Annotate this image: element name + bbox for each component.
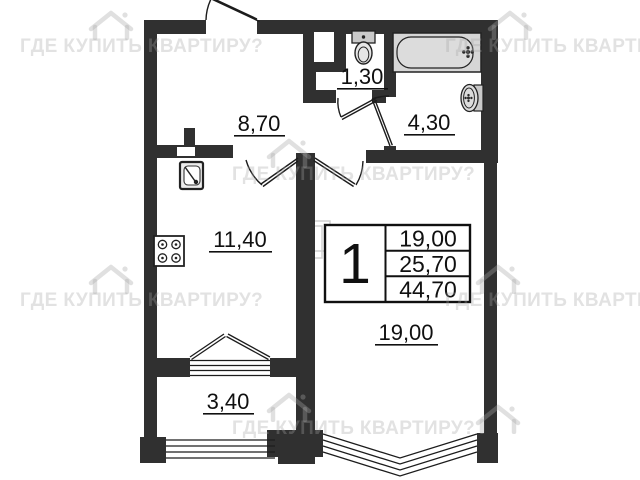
hallway-area-underline bbox=[234, 135, 285, 137]
wash-basin-icon bbox=[461, 85, 483, 112]
vent-stub bbox=[184, 128, 195, 147]
wc-area-underline bbox=[337, 88, 388, 90]
kitchen-sink-icon bbox=[180, 162, 203, 189]
floor-plan: 8,70 1,30 4,30 11,40 19,00 3,40 1 19,00 … bbox=[0, 0, 640, 480]
table-living-area: 19,00 bbox=[399, 226, 457, 252]
wall-top-right bbox=[257, 20, 498, 34]
watermark-text: ГДЕ КУПИТЬ КВАРТИРУ? bbox=[232, 418, 475, 439]
wall-kitchen-balcony-right bbox=[270, 358, 315, 377]
kitchen-area-underline bbox=[209, 251, 272, 253]
wall-bay-corner-right bbox=[477, 433, 498, 463]
wc-area-label: 1,30 bbox=[341, 64, 384, 89]
bathroom-area-label: 4,30 bbox=[408, 110, 451, 135]
wall-bath-door-stub bbox=[384, 146, 396, 156]
table-apartment-area: 25,70 bbox=[399, 251, 457, 277]
wall-kitchen-room-divider bbox=[296, 153, 315, 432]
watermark-text: ГДЕ КУПИТЬ КВАРТИРУ? bbox=[20, 36, 263, 57]
wall-wc-bottom bbox=[303, 90, 336, 103]
watermark-text: ГДЕ КУПИТЬ КВАРТИРУ? bbox=[445, 290, 640, 311]
balcony-area-underline bbox=[203, 413, 254, 415]
watermark-text: ГДЕ КУПИТЬ КВАРТИРУ? bbox=[20, 290, 263, 311]
wall-kitchen-balcony-left bbox=[144, 358, 190, 377]
wall-bay-block-foot bbox=[278, 457, 315, 464]
living-room-area-underline bbox=[375, 344, 438, 346]
vent-hole-wc bbox=[314, 32, 334, 62]
kitchen-area-label: 11,40 bbox=[213, 227, 266, 252]
watermark-text: ГДЕ КУПИТЬ КВАРТИРУ? bbox=[445, 36, 640, 57]
floor-plan-page: 8,70 1,30 4,30 11,40 19,00 3,40 1 19,00 … bbox=[0, 0, 640, 480]
hallway-area-label: 8,70 bbox=[238, 111, 281, 136]
watermark-text: ГДЕ КУПИТЬ КВАРТИРУ? bbox=[232, 164, 475, 185]
vent-hole-kitchen bbox=[177, 147, 195, 156]
living-room-area-label: 19,00 bbox=[378, 320, 433, 345]
balcony-area-label: 3,40 bbox=[207, 389, 250, 414]
table-rooms-count: 1 bbox=[339, 232, 371, 296]
wall-balcony-corner-left bbox=[140, 437, 166, 463]
stove-icon bbox=[154, 236, 184, 266]
bathroom-area-underline bbox=[404, 134, 455, 136]
